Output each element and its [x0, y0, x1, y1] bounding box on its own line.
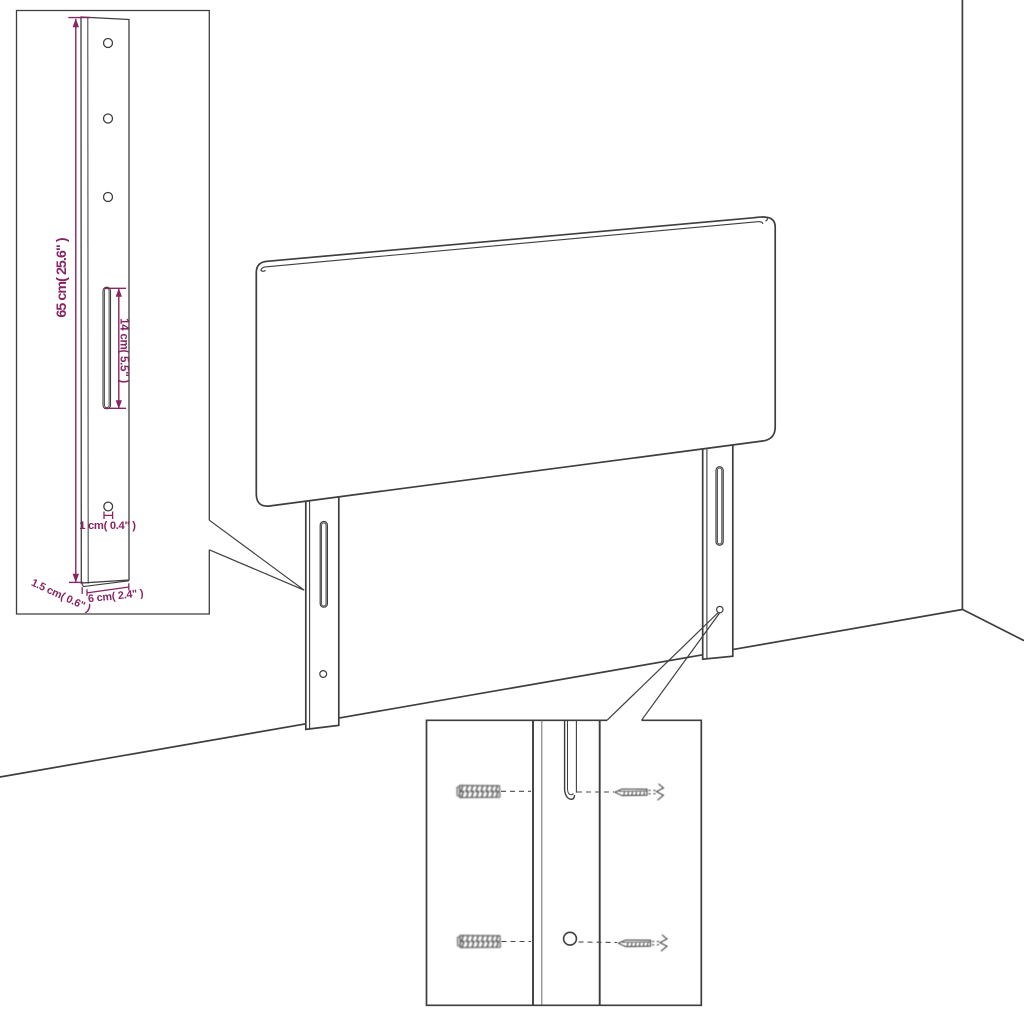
svg-text:65 cm( 25.6" ): 65 cm( 25.6" ): [54, 237, 70, 317]
svg-text:1 cm( 0.4" ): 1 cm( 0.4" ): [79, 520, 136, 532]
svg-text:14 cm( 5.5" ): 14 cm( 5.5" ): [117, 318, 130, 383]
